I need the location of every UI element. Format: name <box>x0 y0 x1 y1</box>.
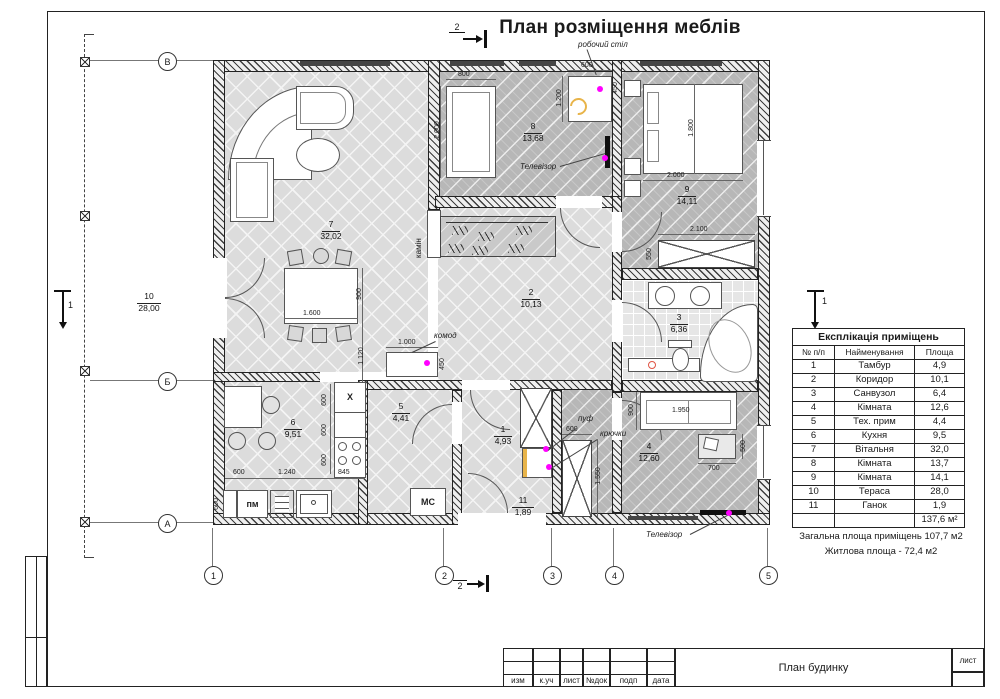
table-row: 7Вітальня32,0 <box>793 444 965 458</box>
terrace-dash-corner <box>84 34 94 35</box>
table-row: 8Кімната13,7 <box>793 458 965 472</box>
summary-living-area: Житлова площа - 72,4 м2 <box>786 546 976 557</box>
wardrobe-room9 <box>658 240 755 268</box>
tv-label-room8: Телевізор <box>520 162 556 171</box>
section-line <box>814 290 816 322</box>
dim-label: 550 <box>646 248 654 260</box>
terrace-dashed-boundary <box>84 34 85 558</box>
axis-bubble-v: В <box>158 52 177 71</box>
post-mark <box>80 517 90 527</box>
stove-burner <box>338 456 347 465</box>
section-tick <box>486 575 489 592</box>
room-label-room8: 813,68 <box>512 122 554 144</box>
axis-bubble-b: Б <box>158 372 177 391</box>
dim-label: 1.600 <box>303 310 321 318</box>
dim-label: 500 <box>740 440 748 452</box>
dim-label: 700 <box>708 465 720 473</box>
tb-row-line <box>503 661 675 662</box>
dim-line <box>225 478 365 479</box>
section-arrow <box>59 322 67 329</box>
table-row: 11Ганок1,9 <box>793 500 965 514</box>
dining-chair <box>287 325 304 342</box>
tb-label-data: дата <box>647 674 675 687</box>
dresser <box>386 352 438 377</box>
bed-pillow <box>647 130 659 162</box>
section-tick <box>484 30 487 48</box>
dim-label: 800 <box>458 71 470 79</box>
table-row: 1Тамбур4,9 <box>793 360 965 374</box>
stove-burner <box>352 456 361 465</box>
tv-room8 <box>605 136 610 168</box>
dim-line <box>362 268 363 390</box>
dining-chair <box>335 325 352 342</box>
dresser-label: комод <box>434 331 457 340</box>
washing-machine: МС <box>410 488 446 516</box>
sink-faucet <box>311 500 316 505</box>
dim-label: 1.550 <box>595 467 603 485</box>
window-top-living <box>300 61 390 66</box>
drawing-sheet: План розміщення меблів 2 2 1 1 В Б А 1 2… <box>0 0 1000 699</box>
room-label-tambour: 14,93 <box>482 425 524 447</box>
window-right-room9 <box>757 140 771 217</box>
nightstand <box>624 158 641 175</box>
room8-sofa-inner <box>452 92 490 172</box>
dim-label: 450 <box>439 358 447 370</box>
dining-chair <box>335 249 352 266</box>
tv-label-room4: Телевізор <box>646 530 682 539</box>
window-top-room8b <box>519 61 556 66</box>
closet-hooks <box>448 244 464 253</box>
table-row: 3Санвузол6,4 <box>793 388 965 402</box>
room-label-room4: 412,60 <box>628 442 670 464</box>
table-row: 9Кімната14,1 <box>793 472 965 486</box>
col-header: Найменування <box>835 346 915 360</box>
table-header-row: № п/п Найменування Площа <box>793 346 965 360</box>
table-row: 5Тех. прим4,4 <box>793 416 965 430</box>
section-marker-2-top: 2 <box>449 22 465 33</box>
closet-hooks <box>472 246 488 255</box>
section-arrow <box>476 35 483 43</box>
wall-room9-bath <box>622 268 758 280</box>
dim-label: 1.200 <box>556 89 564 107</box>
section-line <box>62 290 64 322</box>
opening-tambour-door <box>462 380 510 390</box>
toilet-bowl <box>672 348 689 371</box>
post-mark <box>80 366 90 376</box>
dim-label: 900 <box>628 404 636 416</box>
summary-total-area: Загальна площа приміщень 107,7 м2 <box>786 531 976 542</box>
dim-line <box>386 347 438 348</box>
col-header: Площа <box>915 346 965 360</box>
axis-line <box>90 522 213 523</box>
dining-chair <box>287 249 304 266</box>
post-mark <box>80 57 90 67</box>
room-label-techroom: 54,41 <box>380 402 422 424</box>
dim-line <box>636 392 637 430</box>
nightstand <box>624 180 641 197</box>
dim-label: 2.000 <box>667 172 685 180</box>
opening-room8-door <box>556 196 602 208</box>
total-area: 137,6 м² <box>915 514 965 528</box>
opening-bath-door <box>612 300 622 342</box>
dining-table <box>284 268 358 324</box>
axis-leader <box>613 528 614 566</box>
room-label-living: 732,02 <box>310 220 352 242</box>
axis-bubble-5: 5 <box>759 566 778 585</box>
explication-table: Експлікація приміщень № п/п Найменування… <box>792 328 965 528</box>
kitchen-table <box>224 386 262 428</box>
stove-burner <box>352 442 361 451</box>
window-top-room8a <box>450 61 504 66</box>
dim-label: 1.800 <box>688 119 696 137</box>
dim-line <box>698 463 736 464</box>
tb-label-list: лист <box>560 674 583 687</box>
dim-label: 1.000 <box>398 339 416 347</box>
axis-bubble-4: 4 <box>605 566 624 585</box>
col-header: № п/п <box>793 346 835 360</box>
dim-label: 900 <box>356 288 364 300</box>
axis-line <box>90 380 213 381</box>
section-arrow <box>478 580 485 588</box>
kitchen-shelf <box>270 490 294 518</box>
tb-sheet-value <box>952 672 984 687</box>
dim-line <box>446 79 496 80</box>
dim-label: 2.000 <box>434 121 442 139</box>
bath-sink <box>655 286 675 306</box>
bed-pillow <box>647 92 659 124</box>
dim-label: 450 <box>612 82 620 94</box>
tb-label-izm: изм <box>503 674 533 687</box>
window-right-room4 <box>757 425 771 480</box>
sofa-seat-line <box>236 162 268 218</box>
hood-box-label: Х <box>334 384 366 410</box>
closet-rod <box>446 222 548 223</box>
kitchen-cabinet <box>223 490 237 518</box>
dining-chair <box>313 248 329 264</box>
alert-ring <box>648 361 656 369</box>
work-desk-label: робочий стіл <box>578 40 628 49</box>
terrace-dash-corner <box>84 557 94 558</box>
tb-label-podp: подп <box>610 674 647 687</box>
toilet-tank <box>668 340 692 348</box>
section-marker-2-bottom: 2 <box>453 580 467 591</box>
room-label-corridor: 210,13 <box>510 288 552 310</box>
axis-bubble-1: 1 <box>204 566 223 585</box>
explication-body: 1Тамбур4,92Коридор10,13Санвузол6,44Кімна… <box>793 360 965 514</box>
table-total-row: 137,6 м² <box>793 514 965 528</box>
fireplace <box>427 210 441 258</box>
counter-divider <box>334 437 366 438</box>
table-title: Експлікація приміщень <box>793 329 965 346</box>
table-row: 6Кухня9,5 <box>793 430 965 444</box>
dining-chair <box>312 328 327 343</box>
table-paper <box>703 437 719 452</box>
axis-bubble-3: 3 <box>543 566 562 585</box>
section-marker-1-right: 1 <box>822 296 827 306</box>
page-title: План розміщення меблів <box>470 17 770 39</box>
closet-hooks <box>508 244 524 253</box>
wardrobe-tambour <box>520 388 552 448</box>
dim-label: 845 <box>338 469 350 477</box>
window-glass-line <box>763 140 764 215</box>
tv-room4 <box>700 510 746 515</box>
fireplace-label: камін <box>414 238 423 258</box>
side-stamp-divider <box>36 556 37 687</box>
axis-leader <box>551 528 552 566</box>
opening-kitchen <box>320 372 358 382</box>
dim-label: 600 <box>321 424 329 436</box>
dim-label: 1.240 <box>278 469 296 477</box>
room-label-terrace: 1028,00 <box>128 292 170 314</box>
closet-hooks <box>452 226 468 235</box>
nightstand <box>624 80 641 97</box>
side-stamp-divider <box>25 637 47 638</box>
dim-label: 600 <box>233 469 245 477</box>
room-label-kitchen: 69,51 <box>272 418 314 440</box>
bath-bench <box>628 358 700 372</box>
counter-divider <box>334 412 366 413</box>
room-label-porch: 111,89 <box>502 496 544 518</box>
sofa-seat-line <box>300 92 346 124</box>
room-label-bathroom: 36,36 <box>658 313 700 335</box>
dim-label: 600 <box>321 394 329 406</box>
dim-label: 600 <box>213 498 221 510</box>
kitchen-chair <box>262 396 280 414</box>
closet-hooks <box>478 232 494 241</box>
dim-line <box>330 384 331 474</box>
outlet-dot <box>424 360 430 366</box>
post-mark <box>80 211 90 221</box>
table-row: 2Коридор10,1 <box>793 374 965 388</box>
axis-leader <box>443 528 444 566</box>
stove-burner <box>338 442 347 451</box>
outlet-dot <box>597 86 603 92</box>
window-glass-line <box>763 425 764 478</box>
axis-bubble-a: А <box>158 514 177 533</box>
axis-line <box>90 60 213 61</box>
closet-accent-strip <box>523 449 527 477</box>
table-row: 10Тераса28,0 <box>793 486 965 500</box>
section-marker-1-left: 1 <box>68 300 73 310</box>
dim-label: 1.950 <box>672 407 690 415</box>
closet-hooks <box>516 226 532 235</box>
tb-label-kuch: к.уч <box>533 674 560 687</box>
window-bottom-room4 <box>628 516 698 520</box>
dim-label: 2.100 <box>690 226 708 234</box>
window-top-room9 <box>640 61 722 66</box>
tb-label-ndok: №док <box>583 674 610 687</box>
tb-doc-name: План будинку <box>675 648 952 687</box>
bath-sink <box>690 286 710 306</box>
pouf-label: пуф <box>578 414 593 423</box>
opening-tech-door <box>452 402 462 444</box>
axis-leader <box>212 528 213 566</box>
wall-tambour-right <box>552 390 562 513</box>
axis-bubble-2: 2 <box>435 566 454 585</box>
dim-line <box>643 180 743 181</box>
dim-label: 600 <box>321 454 329 466</box>
kitchen-chair <box>228 432 246 450</box>
dim-line <box>658 234 755 235</box>
coffee-table-oval <box>296 138 340 172</box>
opening-room9-door <box>612 212 622 252</box>
table-row: 4Кімната12,6 <box>793 402 965 416</box>
dim-line <box>284 318 358 319</box>
dishwasher: пм <box>237 490 268 518</box>
hooks-label: крючки <box>600 429 626 438</box>
dim-line <box>568 70 612 71</box>
outlet-dot <box>602 155 608 161</box>
axis-leader <box>767 528 768 566</box>
room-label-room9: 914,11 <box>666 185 708 207</box>
dim-label: 1.120 <box>358 347 366 365</box>
tb-sheet-label: лист <box>952 648 984 672</box>
